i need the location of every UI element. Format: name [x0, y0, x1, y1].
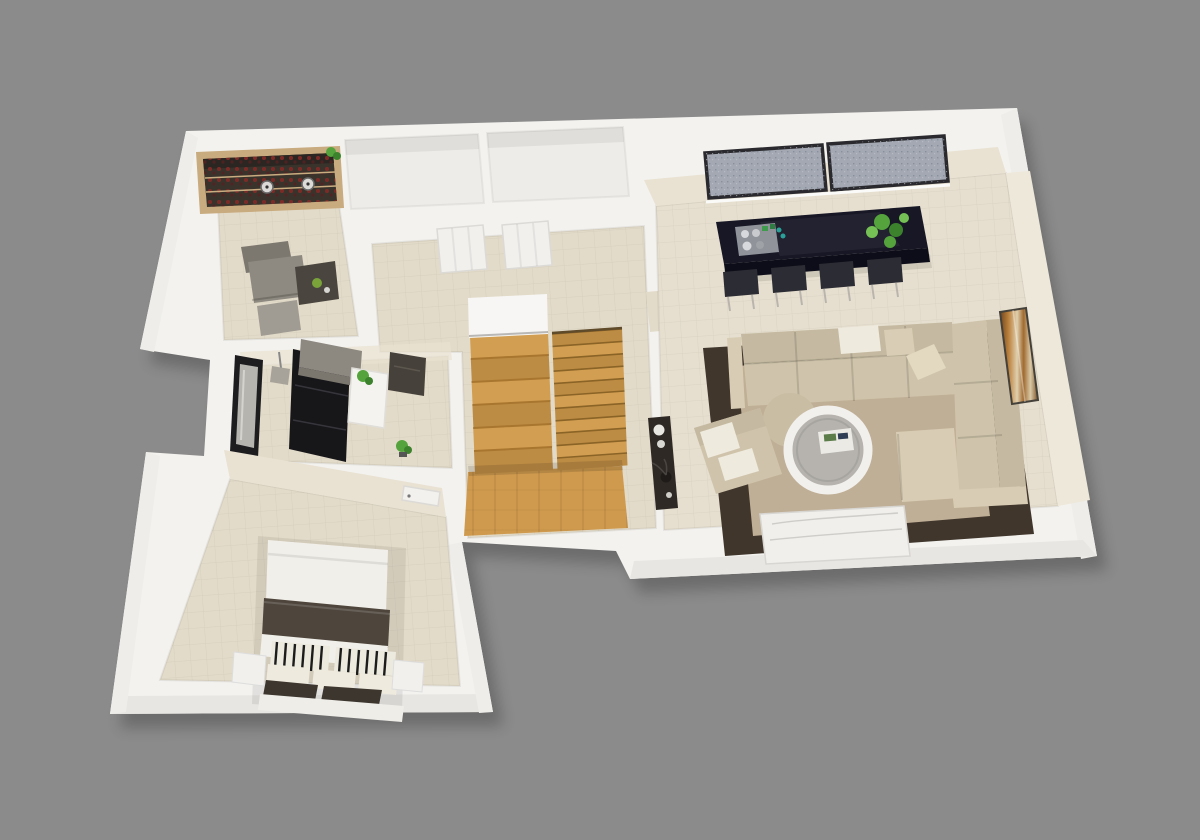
- lamp-center: [306, 182, 309, 185]
- sideboard-top: [388, 352, 426, 396]
- pot: [741, 230, 749, 238]
- pot: [743, 242, 752, 251]
- jar: [781, 234, 786, 239]
- pot: [756, 241, 764, 249]
- herb-box: [770, 224, 775, 229]
- magazine-photo: [838, 433, 848, 440]
- plant-leaves: [899, 213, 909, 223]
- door-handle: [407, 494, 410, 497]
- side-table: [295, 261, 339, 305]
- stairs-upper-treads: [470, 332, 553, 474]
- plant-leaves: [889, 223, 903, 237]
- white-lumbar-pillow: [838, 325, 881, 354]
- floor-plan-svg: [0, 0, 1200, 840]
- window-glass-texture: [705, 145, 826, 198]
- jar: [777, 228, 782, 233]
- bar-stool: [771, 265, 807, 293]
- round-coffee-table: [788, 410, 868, 490]
- closet-door-left: [437, 225, 487, 273]
- console-shelf: [348, 368, 388, 428]
- living-kitchen: [644, 136, 1090, 564]
- plant-leaves: [866, 226, 878, 238]
- decor-plate: [657, 440, 665, 448]
- floor-plan-render: [0, 0, 1200, 840]
- slim-window: [230, 355, 263, 458]
- decor-dish: [666, 492, 672, 498]
- stairs-lower-treads: [552, 329, 628, 470]
- double-bed: [252, 536, 406, 722]
- lamp-shade: [270, 366, 290, 385]
- green-apple: [312, 278, 322, 288]
- plant-pot: [399, 452, 407, 457]
- dark-sideboard: [388, 352, 426, 396]
- magazine: [818, 428, 854, 454]
- rack-plant: [333, 152, 341, 160]
- beige-pillow: [884, 328, 915, 356]
- landing-planks: [464, 466, 628, 536]
- nightstand-right: [392, 660, 424, 692]
- wine-rack: [196, 146, 344, 214]
- plant-leaves: [874, 214, 890, 230]
- table-dish: [324, 287, 330, 293]
- entry-hall: [230, 339, 452, 468]
- magazine-cover: [818, 428, 854, 454]
- bar-stool: [723, 269, 759, 297]
- floor-cushion: [257, 300, 301, 336]
- pot: [752, 229, 760, 237]
- nightstand-left: [232, 652, 266, 686]
- plant-leaves: [884, 236, 896, 248]
- bar-stool: [819, 261, 855, 289]
- herb-box: [762, 226, 768, 231]
- staircase: [464, 294, 628, 536]
- decor-plate: [654, 425, 665, 436]
- pillow-base: [334, 647, 396, 676]
- magazine-photo: [824, 433, 837, 441]
- lamp-center: [265, 185, 268, 188]
- stair-cut-cap: [468, 294, 548, 338]
- window-glass-texture: [828, 136, 948, 190]
- bench-top: [760, 506, 910, 564]
- shelf-plant: [365, 377, 373, 385]
- chaise: [896, 428, 960, 502]
- wine-bottles: [203, 153, 337, 207]
- marble-tv-bench: [760, 506, 910, 564]
- closet-door-right: [502, 221, 552, 269]
- bar-stool: [867, 257, 903, 285]
